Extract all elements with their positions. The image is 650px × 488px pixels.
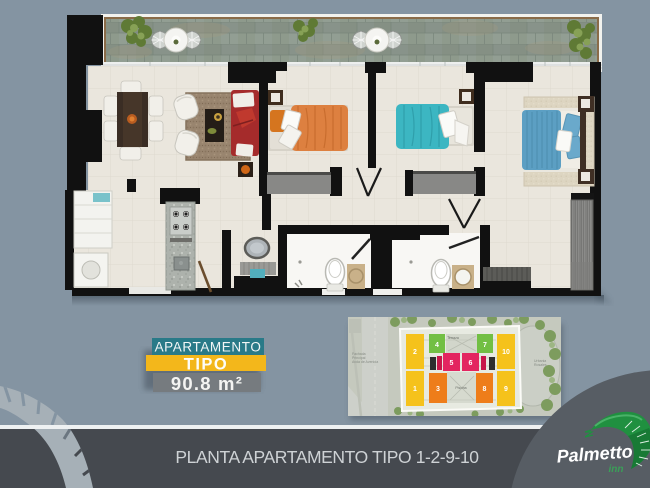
svg-text:Terraza: Terraza — [447, 336, 459, 340]
svg-text:5: 5 — [450, 360, 454, 367]
svg-text:90.8 m²: 90.8 m² — [171, 373, 243, 394]
svg-text:Avda de Avenida: Avda de Avenida — [352, 360, 378, 364]
svg-text:3: 3 — [436, 386, 440, 393]
svg-text:10: 10 — [502, 349, 510, 356]
svg-text:Piscina: Piscina — [455, 386, 466, 390]
svg-text:2: 2 — [413, 349, 417, 356]
svg-text:9: 9 — [504, 386, 508, 393]
svg-text:4: 4 — [435, 342, 439, 349]
svg-text:inn: inn — [609, 464, 624, 475]
svg-text:8: 8 — [483, 386, 487, 393]
svg-text:PLANTA APARTAMENTO TIPO 1-2-9-: PLANTA APARTAMENTO TIPO 1-2-9-10 — [175, 447, 479, 467]
svg-text:6: 6 — [469, 360, 473, 367]
svg-text:Rosales: Rosales — [534, 363, 547, 367]
svg-text:7: 7 — [483, 342, 487, 349]
svg-text:APARTAMENTO: APARTAMENTO — [155, 340, 262, 355]
svg-text:1: 1 — [413, 386, 417, 393]
svg-text:TIPO: TIPO — [184, 355, 229, 373]
